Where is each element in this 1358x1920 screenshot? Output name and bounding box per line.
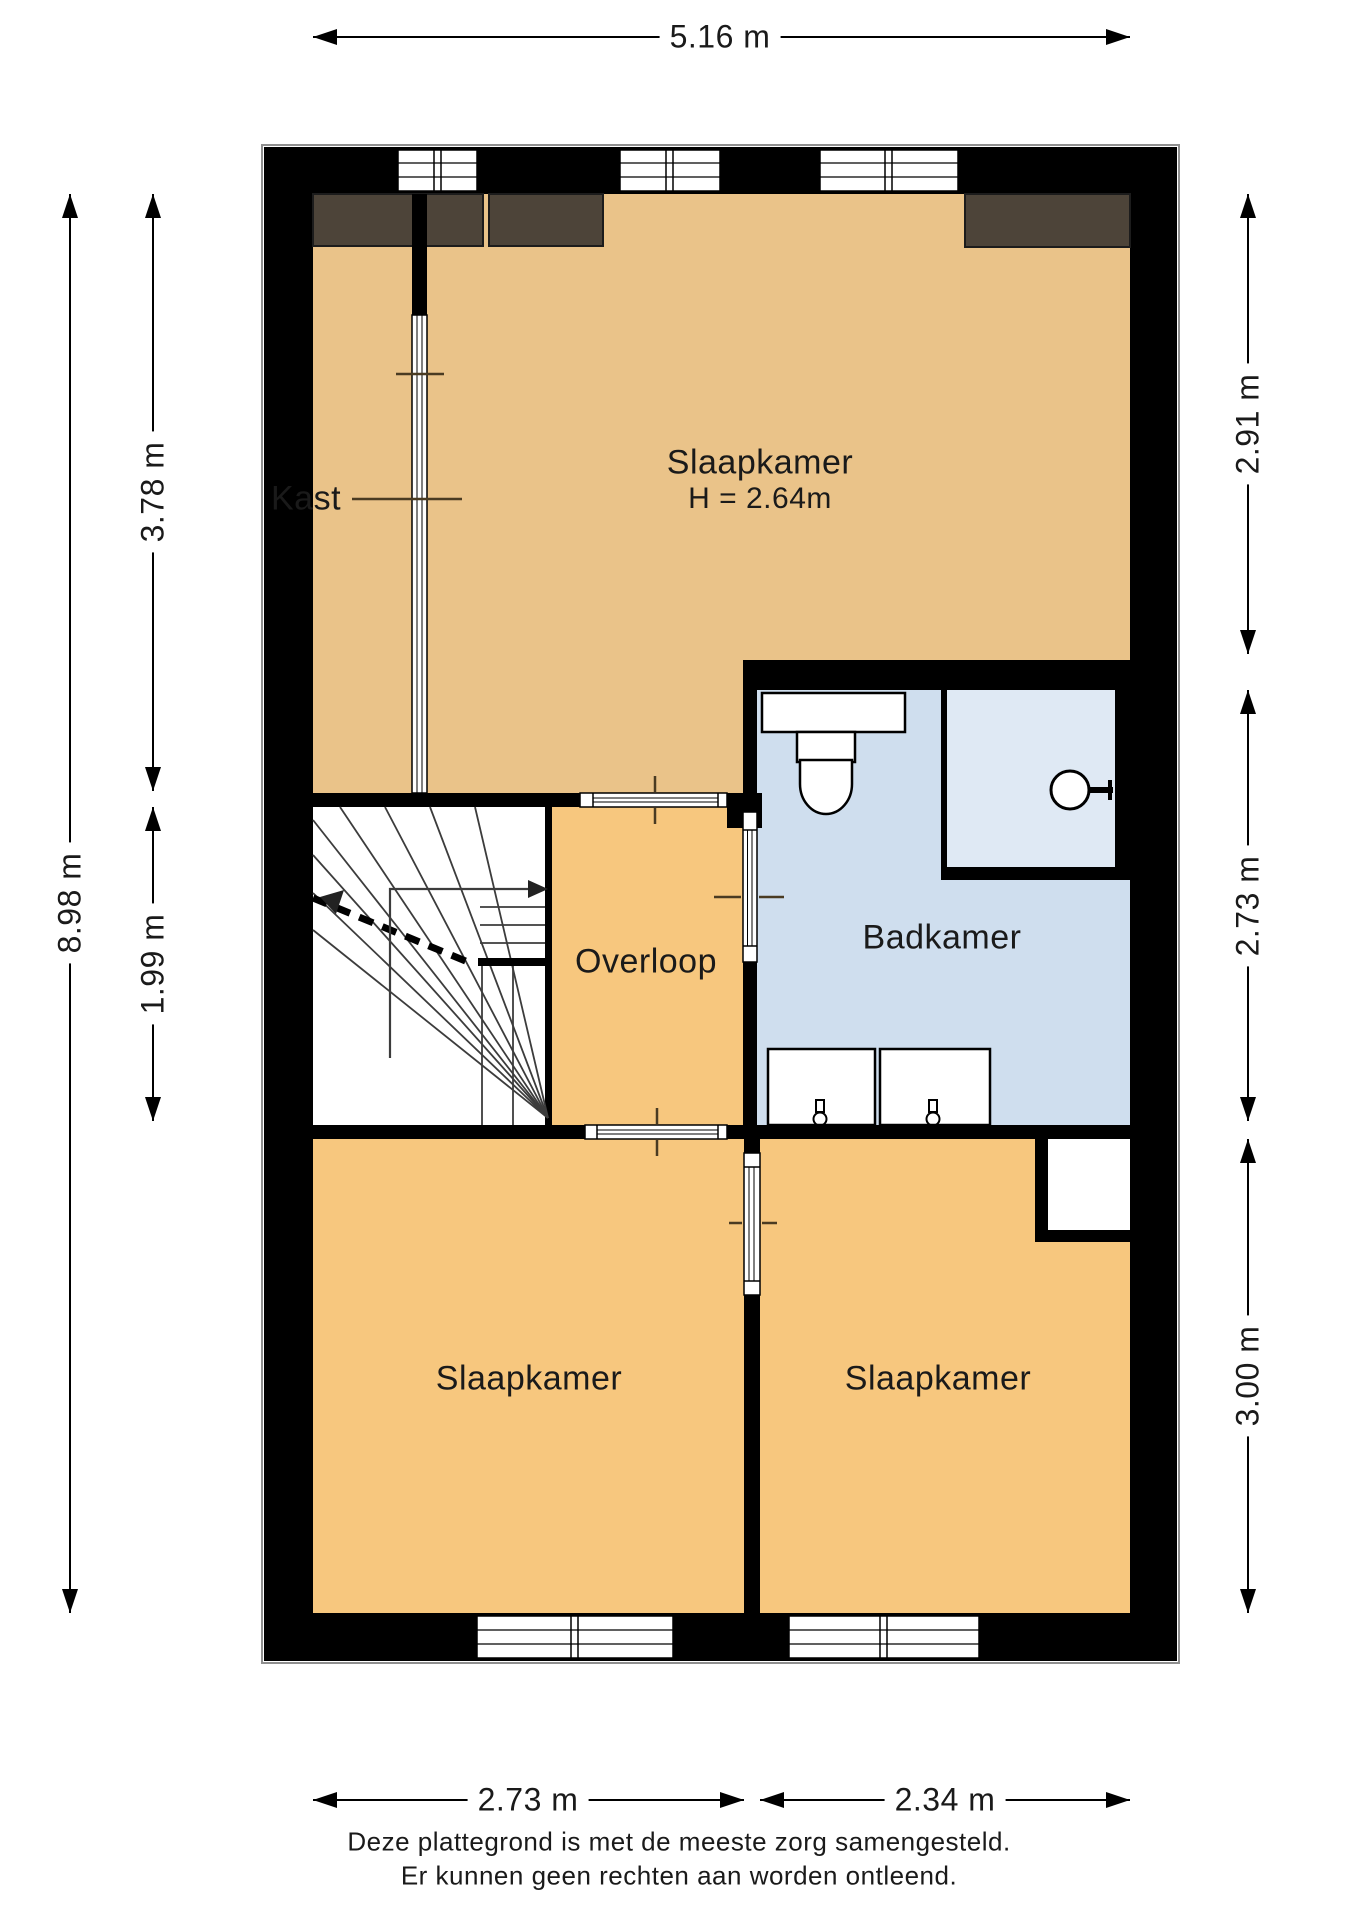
shower-wall [941, 867, 1115, 880]
bathroom-left-wall-upper [743, 660, 757, 812]
shower-head-icon [1051, 771, 1089, 809]
slider-bottom [585, 1125, 727, 1139]
slider-top [580, 793, 727, 807]
bedroom-right-door [744, 1153, 760, 1295]
room-label-bedroom-top: Slaapkamer [667, 444, 853, 483]
toilet-bowl [800, 760, 852, 814]
shower-floor [947, 690, 1115, 867]
room-label-bedroom-top-height: H = 2.64m [688, 482, 832, 516]
room-label-bedroom-left: Slaapkamer [436, 1360, 622, 1399]
dim-right-middle: 2.73 m [1228, 846, 1269, 967]
bedroom-top-floor [313, 194, 1130, 660]
room-label-landing: Overloop [575, 943, 717, 982]
shower-screen [941, 690, 947, 867]
wall-stairs-top [313, 793, 580, 807]
duct-niche [1048, 1139, 1130, 1230]
kast-partition [412, 315, 427, 793]
kast-partition-head [412, 194, 427, 315]
dim-left-lower: 1.99 m [133, 904, 174, 1025]
washbasin [762, 693, 905, 732]
storage-strip-right [965, 194, 1130, 247]
room-label-bedroom-right: Slaapkamer [845, 1360, 1031, 1399]
bedroom-divider-bottom [744, 1295, 760, 1613]
storage-strip-middle [489, 194, 603, 246]
bathroom-top-wall [743, 660, 1130, 690]
niche-left-wall [1035, 1125, 1048, 1242]
toilet-cistern [797, 732, 855, 762]
dim-top-width: 5.16 m [660, 17, 781, 58]
bathroom-door [743, 812, 757, 962]
room-label-kast: Kast [271, 480, 341, 519]
footer-disclaimer-line2: Er kunnen geen rechten aan worden ontlee… [401, 1861, 957, 1892]
dim-bottom-right: 2.34 m [885, 1780, 1006, 1821]
room-label-bathroom: Badkamer [863, 919, 1022, 958]
bathroom-left-wall-lower [743, 960, 757, 1125]
wall-landing-bottom [313, 1125, 585, 1139]
bathroom-right-notch [1115, 690, 1130, 880]
bedroom-top-floor-lower [313, 660, 743, 793]
stairwell-wall [545, 807, 552, 1125]
dim-right-lower: 3.00 m [1228, 1316, 1269, 1437]
bathroom-bottom-wall [727, 1125, 1130, 1139]
dim-bottom-left: 2.73 m [468, 1780, 589, 1821]
footer-disclaimer-line1: Deze plattegrond is met de meeste zorg s… [347, 1827, 1010, 1858]
floorplan-page: Kast Slaapkamer H = 2.64m Overloop Badka… [0, 0, 1358, 1920]
storage-strip-left [313, 194, 483, 246]
dim-left-total: 8.98 m [50, 843, 91, 964]
dim-right-upper: 2.91 m [1228, 364, 1269, 485]
dim-left-upper: 3.78 m [133, 432, 174, 553]
niche-bottom-wall [1048, 1230, 1130, 1242]
